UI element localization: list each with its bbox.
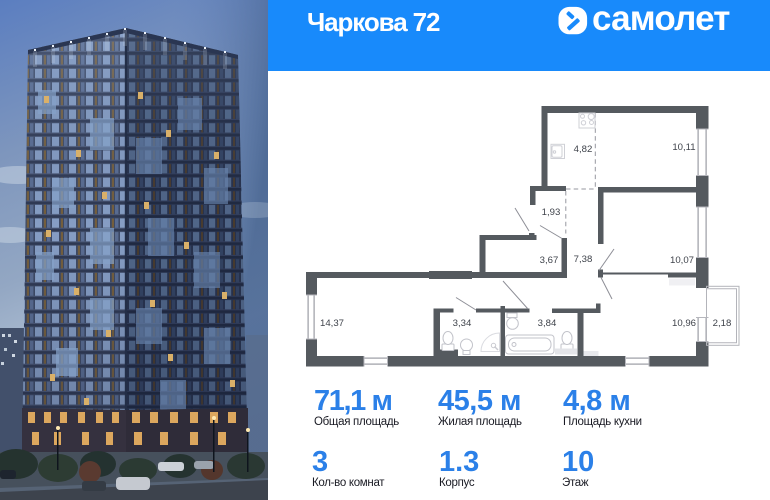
svg-text:4,82: 4,82: [574, 144, 593, 155]
svg-text:14,37: 14,37: [320, 318, 344, 329]
svg-text:10,11: 10,11: [672, 142, 695, 153]
svg-text:3,84: 3,84: [538, 318, 557, 329]
svg-text:1,93: 1,93: [542, 207, 561, 218]
svg-text:7,38: 7,38: [574, 254, 593, 265]
svg-text:10,96: 10,96: [672, 318, 696, 329]
svg-text:3,34: 3,34: [453, 318, 472, 329]
svg-text:10,07: 10,07: [670, 255, 694, 266]
svg-text:3,67: 3,67: [540, 255, 559, 266]
svg-text:2,18: 2,18: [713, 318, 732, 329]
